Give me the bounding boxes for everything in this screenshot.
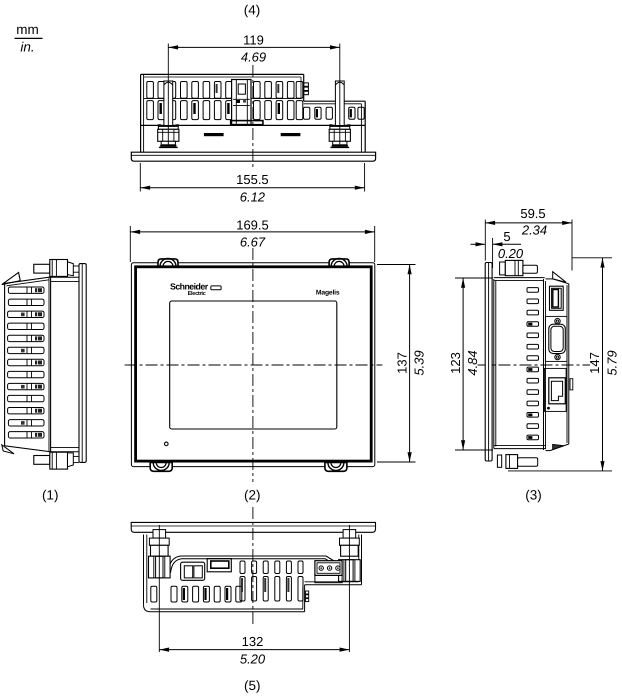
svg-text:Magelis: Magelis — [316, 290, 340, 297]
svg-text:4.69: 4.69 — [241, 50, 266, 65]
svg-text:137: 137 — [394, 352, 409, 374]
svg-text:(4): (4) — [244, 3, 261, 18]
svg-text:(3): (3) — [525, 488, 542, 503]
svg-text:5: 5 — [503, 229, 510, 244]
svg-text:in.: in. — [20, 40, 34, 55]
svg-text:2.34: 2.34 — [521, 223, 547, 238]
svg-text:59.5: 59.5 — [520, 206, 545, 221]
svg-text:132: 132 — [242, 634, 264, 649]
svg-text:123: 123 — [448, 352, 463, 374]
svg-text:Electric: Electric — [188, 290, 206, 297]
svg-text:5.20: 5.20 — [240, 652, 266, 667]
svg-text:0.20: 0.20 — [498, 246, 524, 261]
svg-text:147: 147 — [587, 352, 602, 374]
svg-text:6.12: 6.12 — [240, 190, 266, 205]
svg-text:169.5: 169.5 — [236, 217, 269, 232]
svg-text:5.79: 5.79 — [605, 350, 620, 375]
svg-text:(1): (1) — [42, 488, 59, 503]
svg-text:6.67: 6.67 — [240, 235, 266, 250]
svg-text:155.5: 155.5 — [236, 172, 269, 187]
svg-text:4.84: 4.84 — [465, 350, 480, 375]
svg-text:mm: mm — [16, 22, 39, 37]
svg-text:5.39: 5.39 — [412, 350, 427, 375]
svg-text:(5): (5) — [244, 678, 261, 693]
svg-text:(2): (2) — [244, 488, 261, 503]
svg-text:119: 119 — [243, 33, 264, 48]
